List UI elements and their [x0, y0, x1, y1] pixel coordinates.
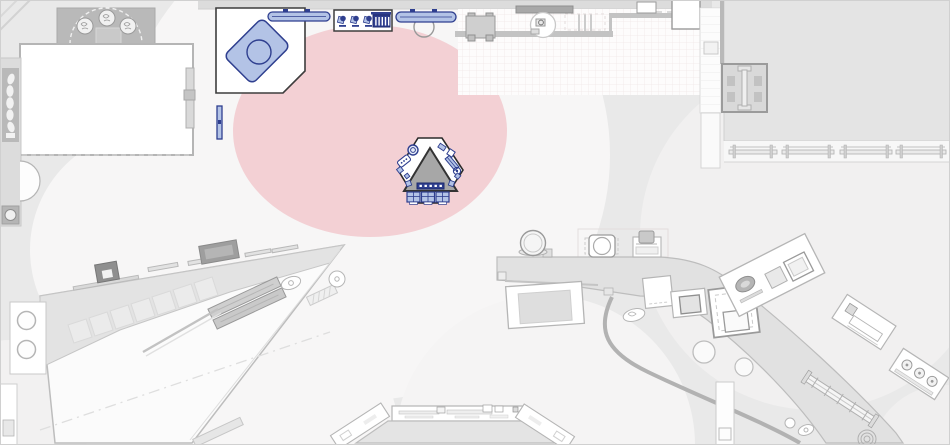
right-service-zone	[700, 0, 950, 168]
floor-plan-viewport	[0, 0, 950, 445]
service-strip	[716, 382, 734, 445]
wall-segment	[720, 0, 724, 64]
lounge-chair	[120, 18, 136, 34]
blue-wall-shelf	[217, 106, 222, 139]
countertop-appliance	[585, 235, 618, 257]
sink-with-plate	[519, 231, 547, 256]
lounge-chair	[99, 10, 115, 26]
register	[95, 261, 120, 283]
demo-table	[506, 281, 585, 328]
round-prep-table	[531, 13, 556, 38]
kiosk-display-window	[436, 192, 449, 204]
large-room	[20, 44, 195, 155]
corridor-fixture	[704, 42, 718, 54]
counter-tab	[604, 288, 613, 295]
fitting-room	[643, 276, 674, 309]
door-panel	[186, 68, 194, 92]
entry-vestibule	[672, 0, 700, 29]
left-stool-column	[10, 302, 46, 374]
cafe-stool-station	[334, 10, 392, 31]
floor-plan-canvas[interactable]	[0, 0, 950, 445]
counter-tab	[498, 272, 506, 280]
column-with-table	[2, 206, 19, 224]
door-hinge	[184, 90, 195, 100]
door-panel	[186, 100, 194, 128]
kiosk-display-window	[422, 192, 435, 204]
wall-cabinet	[637, 2, 656, 13]
side-table	[96, 28, 121, 45]
corridor-cabinet	[701, 113, 720, 168]
elevator	[722, 64, 767, 112]
radiator-grill-icon	[371, 12, 391, 27]
round-stool	[693, 341, 715, 363]
round-stool	[735, 358, 753, 376]
kiosk-display-window	[407, 192, 420, 204]
register-station	[671, 288, 708, 317]
lounge-chair	[77, 18, 93, 34]
stage-counter	[392, 405, 527, 421]
square-table-with-chairs	[466, 13, 495, 41]
corner-cabinet-strip	[0, 384, 17, 445]
stool-top	[329, 271, 345, 287]
meeting-room	[57, 8, 155, 45]
